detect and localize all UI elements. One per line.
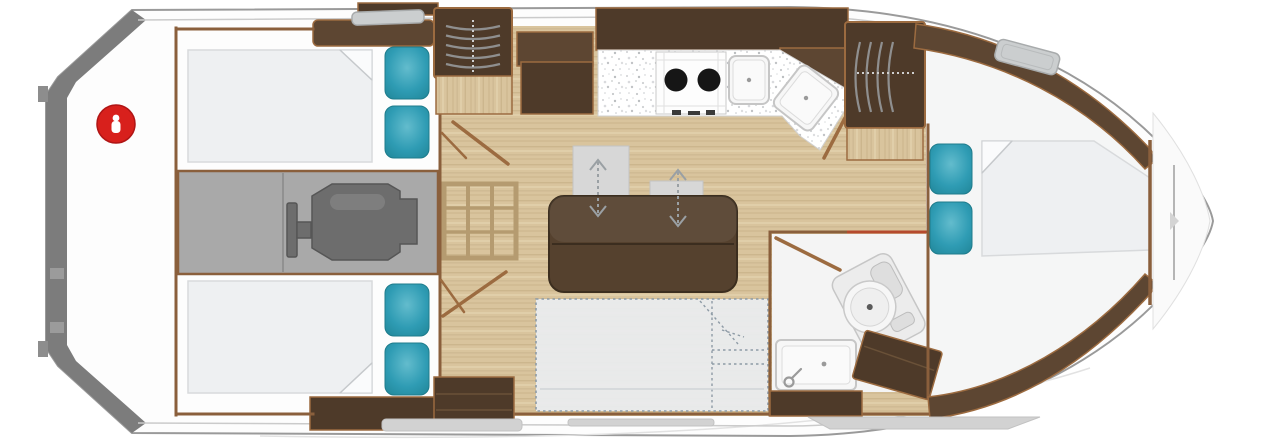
burner bbox=[698, 69, 721, 92]
pillow bbox=[385, 343, 429, 395]
convertible-berth-outline bbox=[536, 299, 768, 411]
bow-v-panel bbox=[1153, 113, 1210, 329]
galley-cabinet-low bbox=[521, 62, 593, 114]
platform-notch bbox=[50, 268, 64, 279]
transom-step bbox=[38, 341, 48, 357]
platform-step bbox=[568, 419, 714, 426]
engine-pulley bbox=[287, 203, 297, 257]
head bbox=[770, 232, 943, 416]
stove-knob bbox=[688, 111, 700, 115]
bow-steps-icon bbox=[845, 22, 925, 128]
platform-step bbox=[808, 417, 1040, 429]
engine-room bbox=[178, 171, 438, 274]
engine-highlight bbox=[330, 194, 385, 210]
transom-step bbox=[38, 86, 48, 102]
bow-steps-wood-panel bbox=[847, 128, 923, 160]
companionway-steps-icon bbox=[434, 8, 512, 78]
wash-basin-drain bbox=[822, 362, 827, 367]
pillow bbox=[930, 144, 972, 194]
burner bbox=[665, 69, 688, 92]
bed-mattress bbox=[188, 281, 372, 393]
pillow bbox=[385, 106, 429, 158]
stove-knob bbox=[672, 110, 681, 115]
red-circle-marker bbox=[97, 105, 135, 143]
yacht-floorplan bbox=[0, 0, 1280, 443]
platform-notch bbox=[50, 322, 64, 333]
marker-icon bbox=[113, 115, 120, 122]
aft-deck bbox=[97, 105, 135, 143]
sink-drain bbox=[747, 78, 751, 82]
galley-top-cabinet bbox=[596, 8, 848, 50]
bed-mattress bbox=[188, 50, 372, 162]
engine-coupling bbox=[297, 222, 311, 238]
convertible-berth bbox=[536, 299, 768, 411]
pillow bbox=[930, 202, 972, 254]
table-sheen bbox=[549, 196, 737, 242]
marker-icon-base bbox=[112, 121, 121, 133]
pillow bbox=[385, 47, 429, 99]
steps-wood-panel bbox=[436, 76, 512, 114]
pillow bbox=[385, 284, 429, 336]
platform-step bbox=[382, 419, 522, 431]
stove-two-burner-icon bbox=[656, 52, 726, 115]
galley-cabinet-tall bbox=[517, 32, 593, 66]
floorplan-canvas bbox=[0, 0, 1280, 443]
stove-knob bbox=[706, 110, 715, 115]
vanity-cabinet bbox=[770, 391, 862, 416]
bow-steps-block bbox=[845, 22, 925, 128]
sink-icon bbox=[729, 56, 769, 104]
top-deck-hatch bbox=[352, 10, 424, 26]
slide-indicator-square bbox=[573, 146, 629, 198]
top-deck-hatch-icon bbox=[352, 10, 424, 26]
dining-table bbox=[549, 196, 737, 292]
wash-basin-icon bbox=[776, 340, 856, 390]
